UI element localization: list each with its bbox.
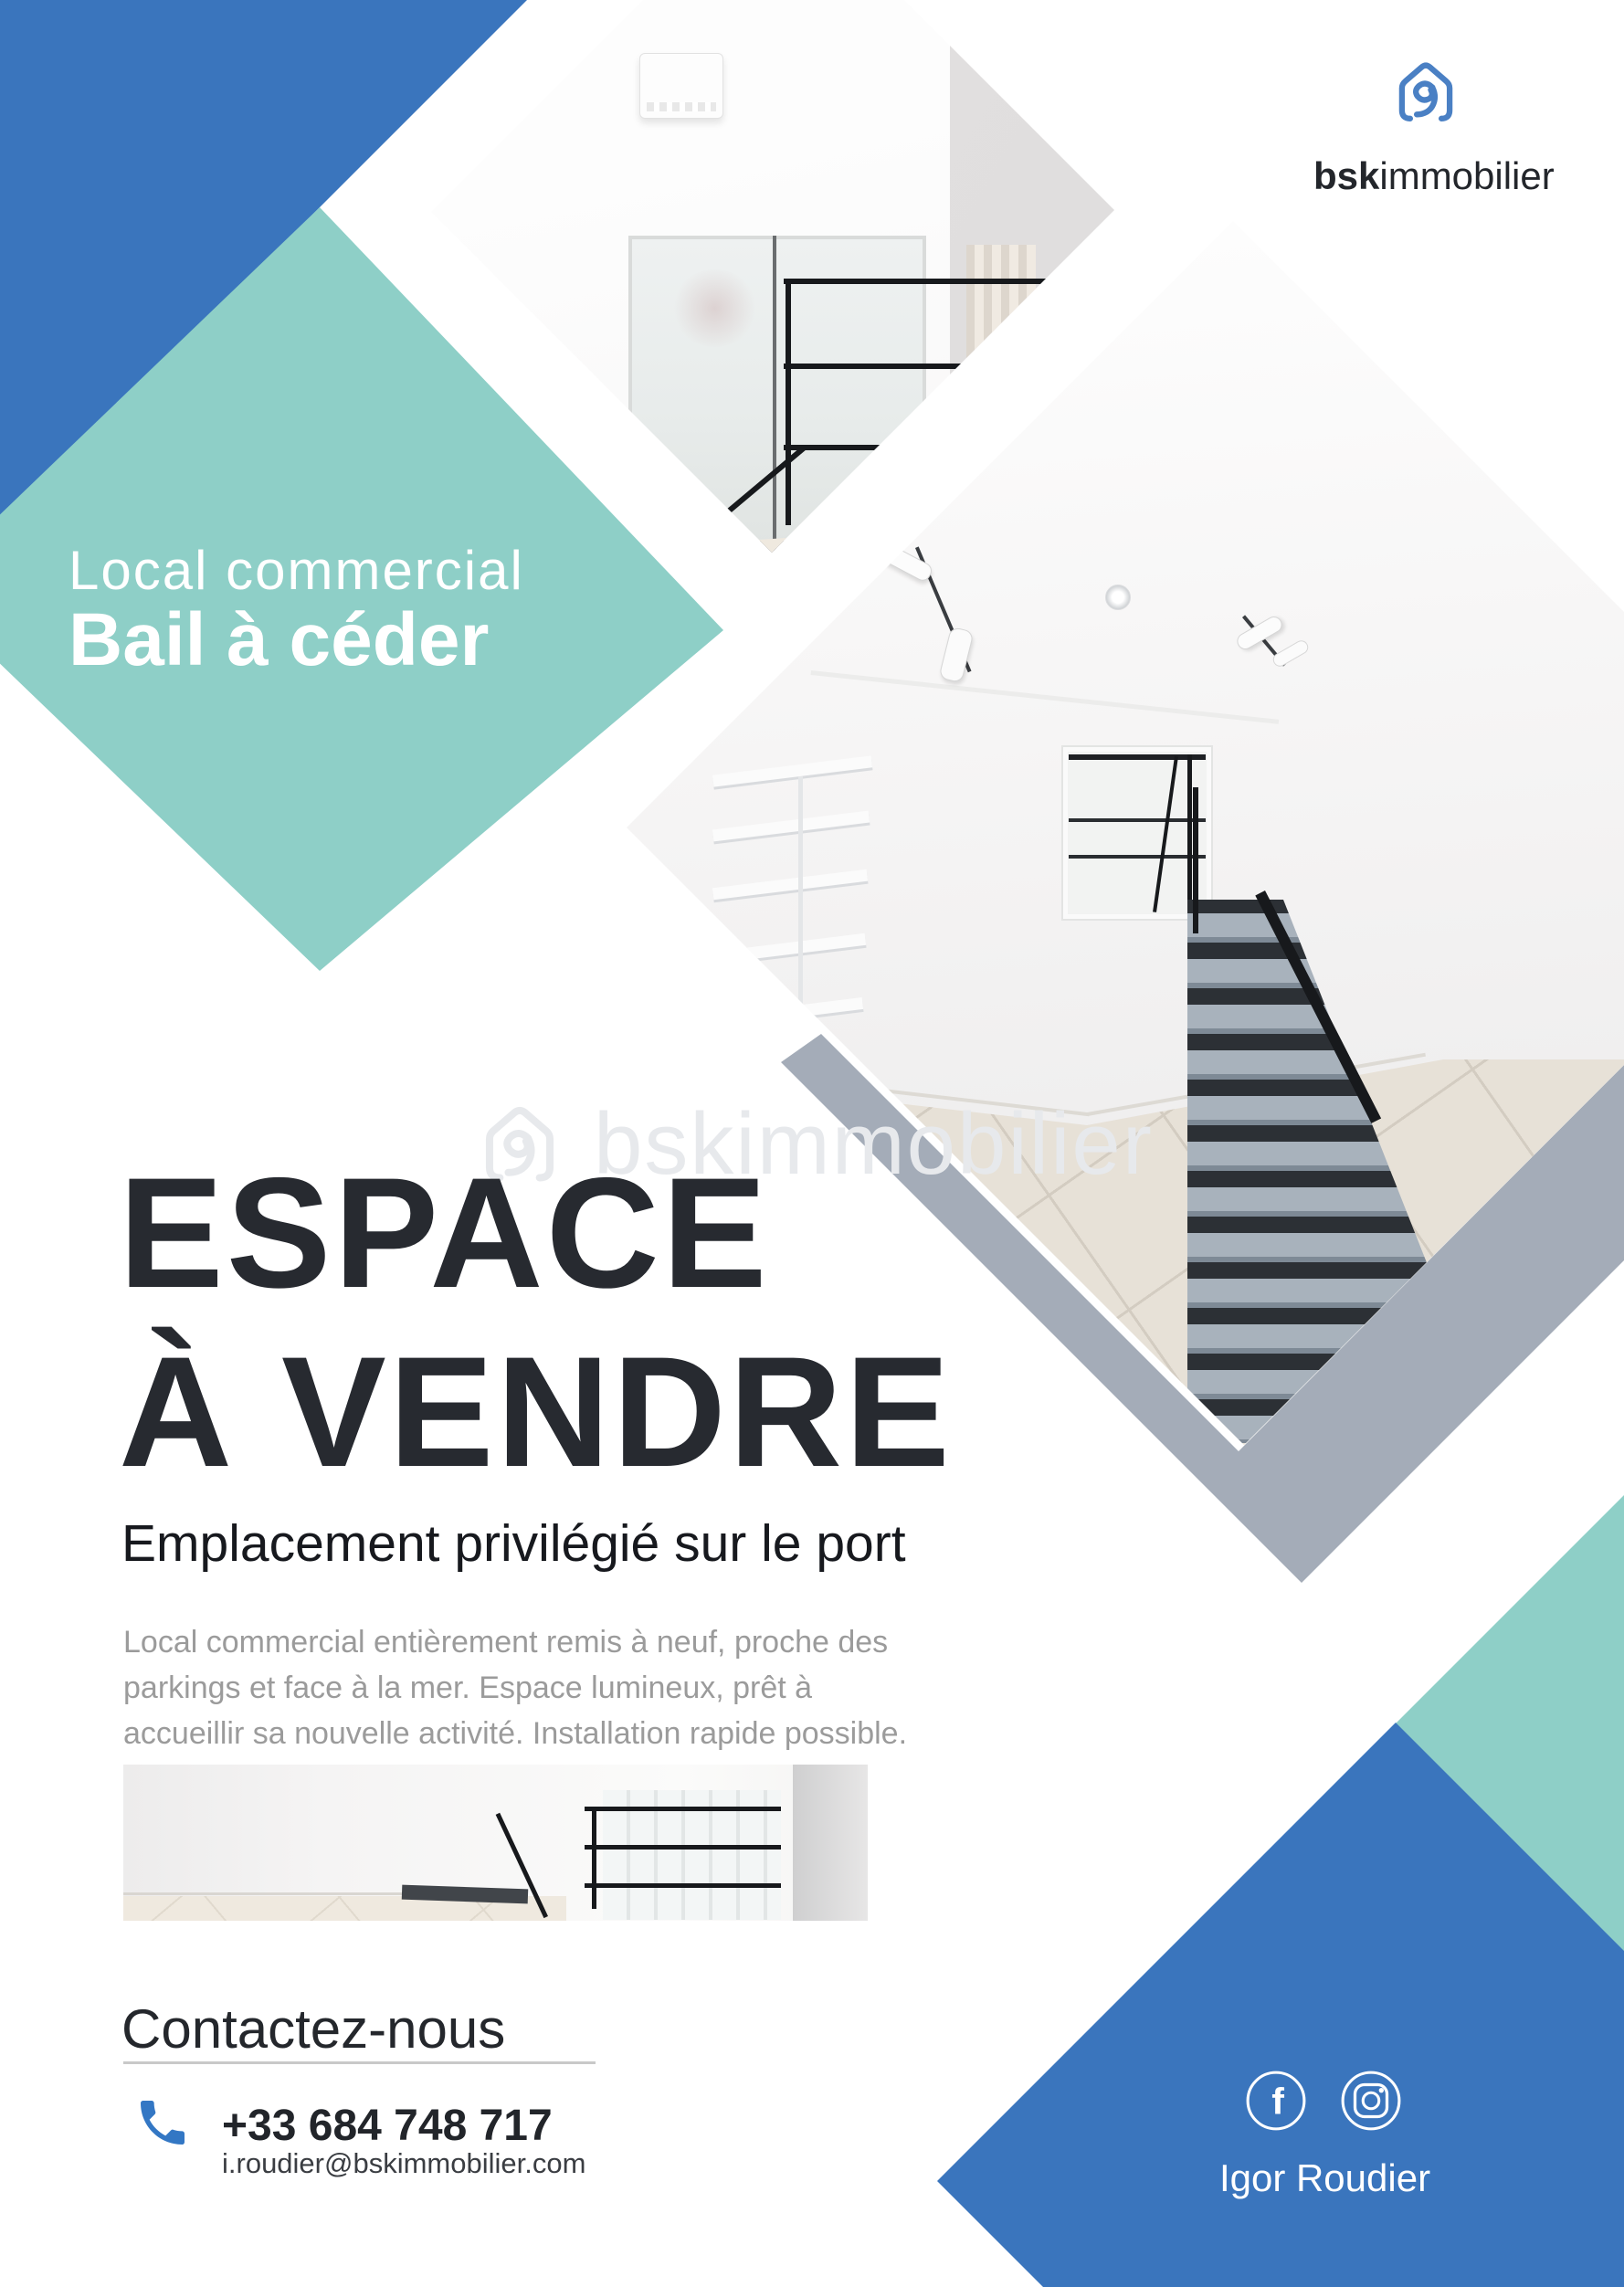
shelf-1 xyxy=(712,755,872,786)
instagram-icon[interactable] xyxy=(1339,2069,1403,2133)
contact-heading: Contactez-nous xyxy=(121,2002,505,2057)
shelf-5 xyxy=(712,997,863,1028)
recessed-spotlight xyxy=(1105,585,1131,610)
photo-top-railing-bar1 xyxy=(784,279,1094,284)
brand-logo-bold: bsk xyxy=(1313,154,1379,197)
description-line2: parkings et face à la mer. Espace lumine… xyxy=(123,1665,907,1711)
stair-rail-post xyxy=(1193,787,1198,933)
window-railing-mid1 xyxy=(1069,818,1206,822)
strip-wall-column xyxy=(793,1765,868,1921)
ceiling-soffit xyxy=(810,670,1279,724)
badge-line1: Local commercial xyxy=(69,543,524,598)
track-light-head-2 xyxy=(938,627,974,684)
strip-railing-bar3 xyxy=(585,1883,781,1888)
page-title: ESPACE À VENDRE xyxy=(119,1143,953,1502)
house-g-icon xyxy=(1385,51,1467,133)
window-railing-post xyxy=(1187,754,1192,915)
strip-railing-bar2 xyxy=(585,1845,781,1850)
flyer-page: bskimmobilier Local commercial Bail à cé… xyxy=(0,0,1624,2287)
track-light-head-3 xyxy=(1234,614,1285,653)
photo-top-railing-bar2 xyxy=(784,364,1094,369)
description-line1: Local commercial entièrement remis à neu… xyxy=(123,1619,907,1665)
brand-logo-text: bskimmobilier xyxy=(1313,157,1555,195)
brand-logo-regular: immobilier xyxy=(1379,154,1554,197)
track-light-head-1 xyxy=(878,542,934,584)
strip-railing-post xyxy=(592,1807,596,1909)
window-railing-top xyxy=(1069,754,1206,760)
contact-phone[interactable]: +33 684 748 717 xyxy=(222,2104,553,2148)
shelf-4 xyxy=(712,933,866,964)
contact-email[interactable]: i.roudier@bskimmobilier.com xyxy=(222,2149,585,2177)
photo-top-door-mullion xyxy=(773,236,776,551)
title-line2: À VENDRE xyxy=(119,1323,953,1502)
facebook-glyph: f xyxy=(1271,2080,1284,2122)
strip-railing-bar1 xyxy=(585,1807,781,1811)
phone-icon xyxy=(133,2093,192,2152)
subtitle: Emplacement privilégié sur le port xyxy=(121,1518,906,1570)
photo-top-tree xyxy=(671,269,758,347)
facebook-icon[interactable]: f xyxy=(1244,2069,1308,2133)
window-railing-mid2 xyxy=(1069,855,1206,859)
photo-top-railing-post xyxy=(786,279,791,525)
shelf-2 xyxy=(712,811,870,842)
description: Local commercial entièrement remis à neu… xyxy=(123,1619,907,1756)
description-line3: accueillir sa nouvelle activité. Install… xyxy=(123,1711,907,1756)
track-light-head-4 xyxy=(1271,638,1311,669)
agent-name: Igor Roudier xyxy=(1195,2159,1455,2197)
title-line1: ESPACE xyxy=(119,1143,953,1323)
photo-top-ac-vent xyxy=(647,102,716,111)
shelf-support xyxy=(798,776,803,1018)
contact-divider xyxy=(123,2061,596,2064)
brand-logo-icon xyxy=(1385,51,1467,133)
badge-line2: Bail à céder xyxy=(69,603,489,678)
shelf-3 xyxy=(712,869,868,901)
